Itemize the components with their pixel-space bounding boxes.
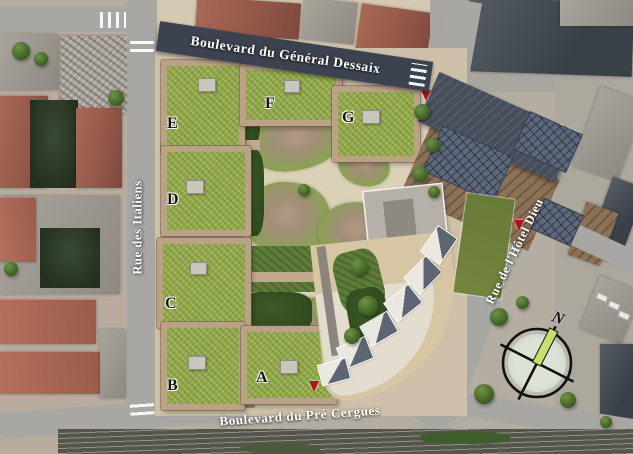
city-building (0, 300, 96, 344)
courtyard-shadow (40, 228, 100, 288)
rooftop-structure (280, 360, 298, 374)
city-building (0, 352, 100, 394)
building-label-a: A (256, 370, 268, 386)
tree (344, 328, 360, 344)
tree (4, 262, 18, 276)
building-label-d: D (167, 192, 179, 208)
street-label-rue-des-italiens: Rue des Italiens (131, 158, 146, 298)
crosswalk (130, 36, 154, 52)
tree (516, 296, 529, 309)
compass-icon (498, 324, 576, 402)
building-block-c (157, 238, 251, 328)
railway-vegetation (240, 444, 320, 453)
tree (350, 258, 368, 276)
city-building (560, 0, 633, 26)
city-building (76, 108, 122, 188)
tree (12, 42, 30, 60)
walkway (240, 272, 318, 282)
city-building (100, 330, 126, 398)
tree (600, 416, 612, 428)
building-block-e (161, 60, 245, 154)
rooftop-structure (190, 262, 207, 275)
courtyard-shadow (30, 100, 78, 188)
tree (358, 296, 378, 316)
city-building (300, 0, 358, 45)
tree (34, 52, 48, 66)
location-marker-icon (309, 381, 319, 392)
building-label-g: G (342, 110, 354, 126)
railway-vegetation (420, 432, 510, 444)
rooftop-structure (362, 110, 380, 124)
rooftop-structure (188, 356, 206, 370)
city-building (0, 34, 58, 90)
crosswalk (100, 12, 126, 28)
tree (412, 166, 428, 182)
city-building (0, 198, 36, 262)
tree (298, 184, 310, 196)
rooftop-structure (198, 78, 216, 92)
location-marker-icon (421, 90, 431, 101)
building-label-f: F (265, 96, 275, 112)
rooftop-structure (284, 80, 300, 93)
tree (474, 384, 494, 404)
aerial-site-plan: E F G D C B A Boulevard du Général Dessa… (0, 0, 633, 454)
rooftop-structure (186, 180, 204, 194)
tree (426, 138, 440, 152)
tree (428, 186, 440, 198)
building-label-e: E (167, 116, 178, 132)
crosswalk (130, 399, 155, 416)
tree (414, 104, 430, 120)
building-label-b: B (167, 378, 178, 394)
building-label-c: C (165, 296, 177, 312)
tree (108, 90, 124, 106)
